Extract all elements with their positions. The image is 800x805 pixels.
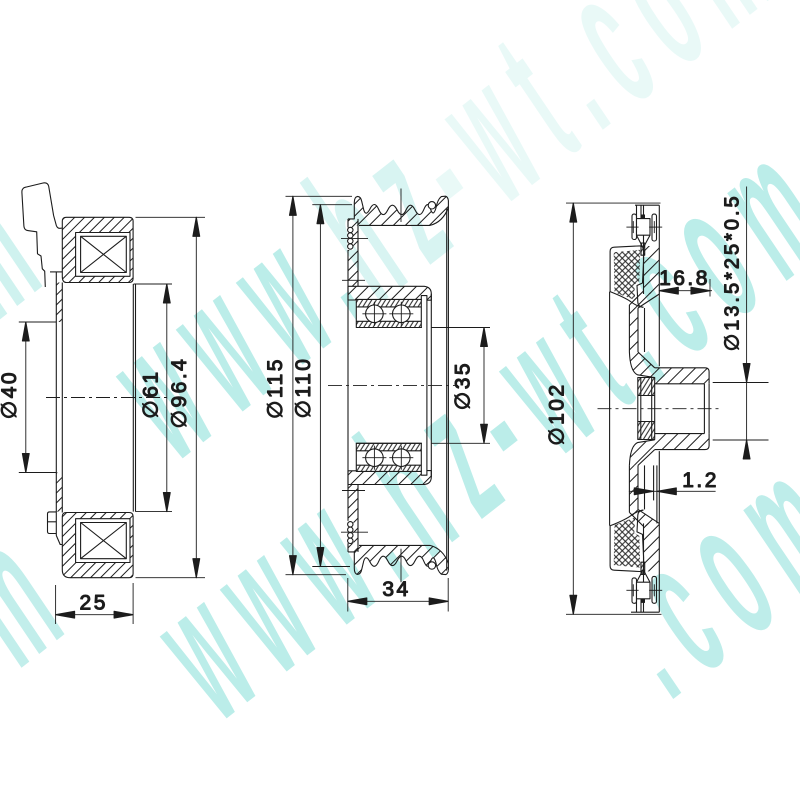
svg-text:16.8: 16.8 [659, 267, 710, 290]
svg-text:∅102: ∅102 [546, 382, 569, 445]
svg-text:1.2: 1.2 [682, 469, 719, 492]
svg-text:∅35: ∅35 [452, 361, 475, 410]
svg-text:∅61: ∅61 [139, 369, 162, 418]
svg-text:∅115: ∅115 [264, 357, 287, 419]
svg-text:∅96.4: ∅96.4 [168, 357, 191, 429]
svg-text:∅110: ∅110 [292, 357, 315, 419]
svg-text:∅40: ∅40 [0, 370, 21, 419]
svg-text:34: 34 [382, 578, 410, 601]
svg-text:∅13.5*25*0.5: ∅13.5*25*0.5 [722, 193, 744, 351]
svg-text:25: 25 [80, 592, 108, 615]
